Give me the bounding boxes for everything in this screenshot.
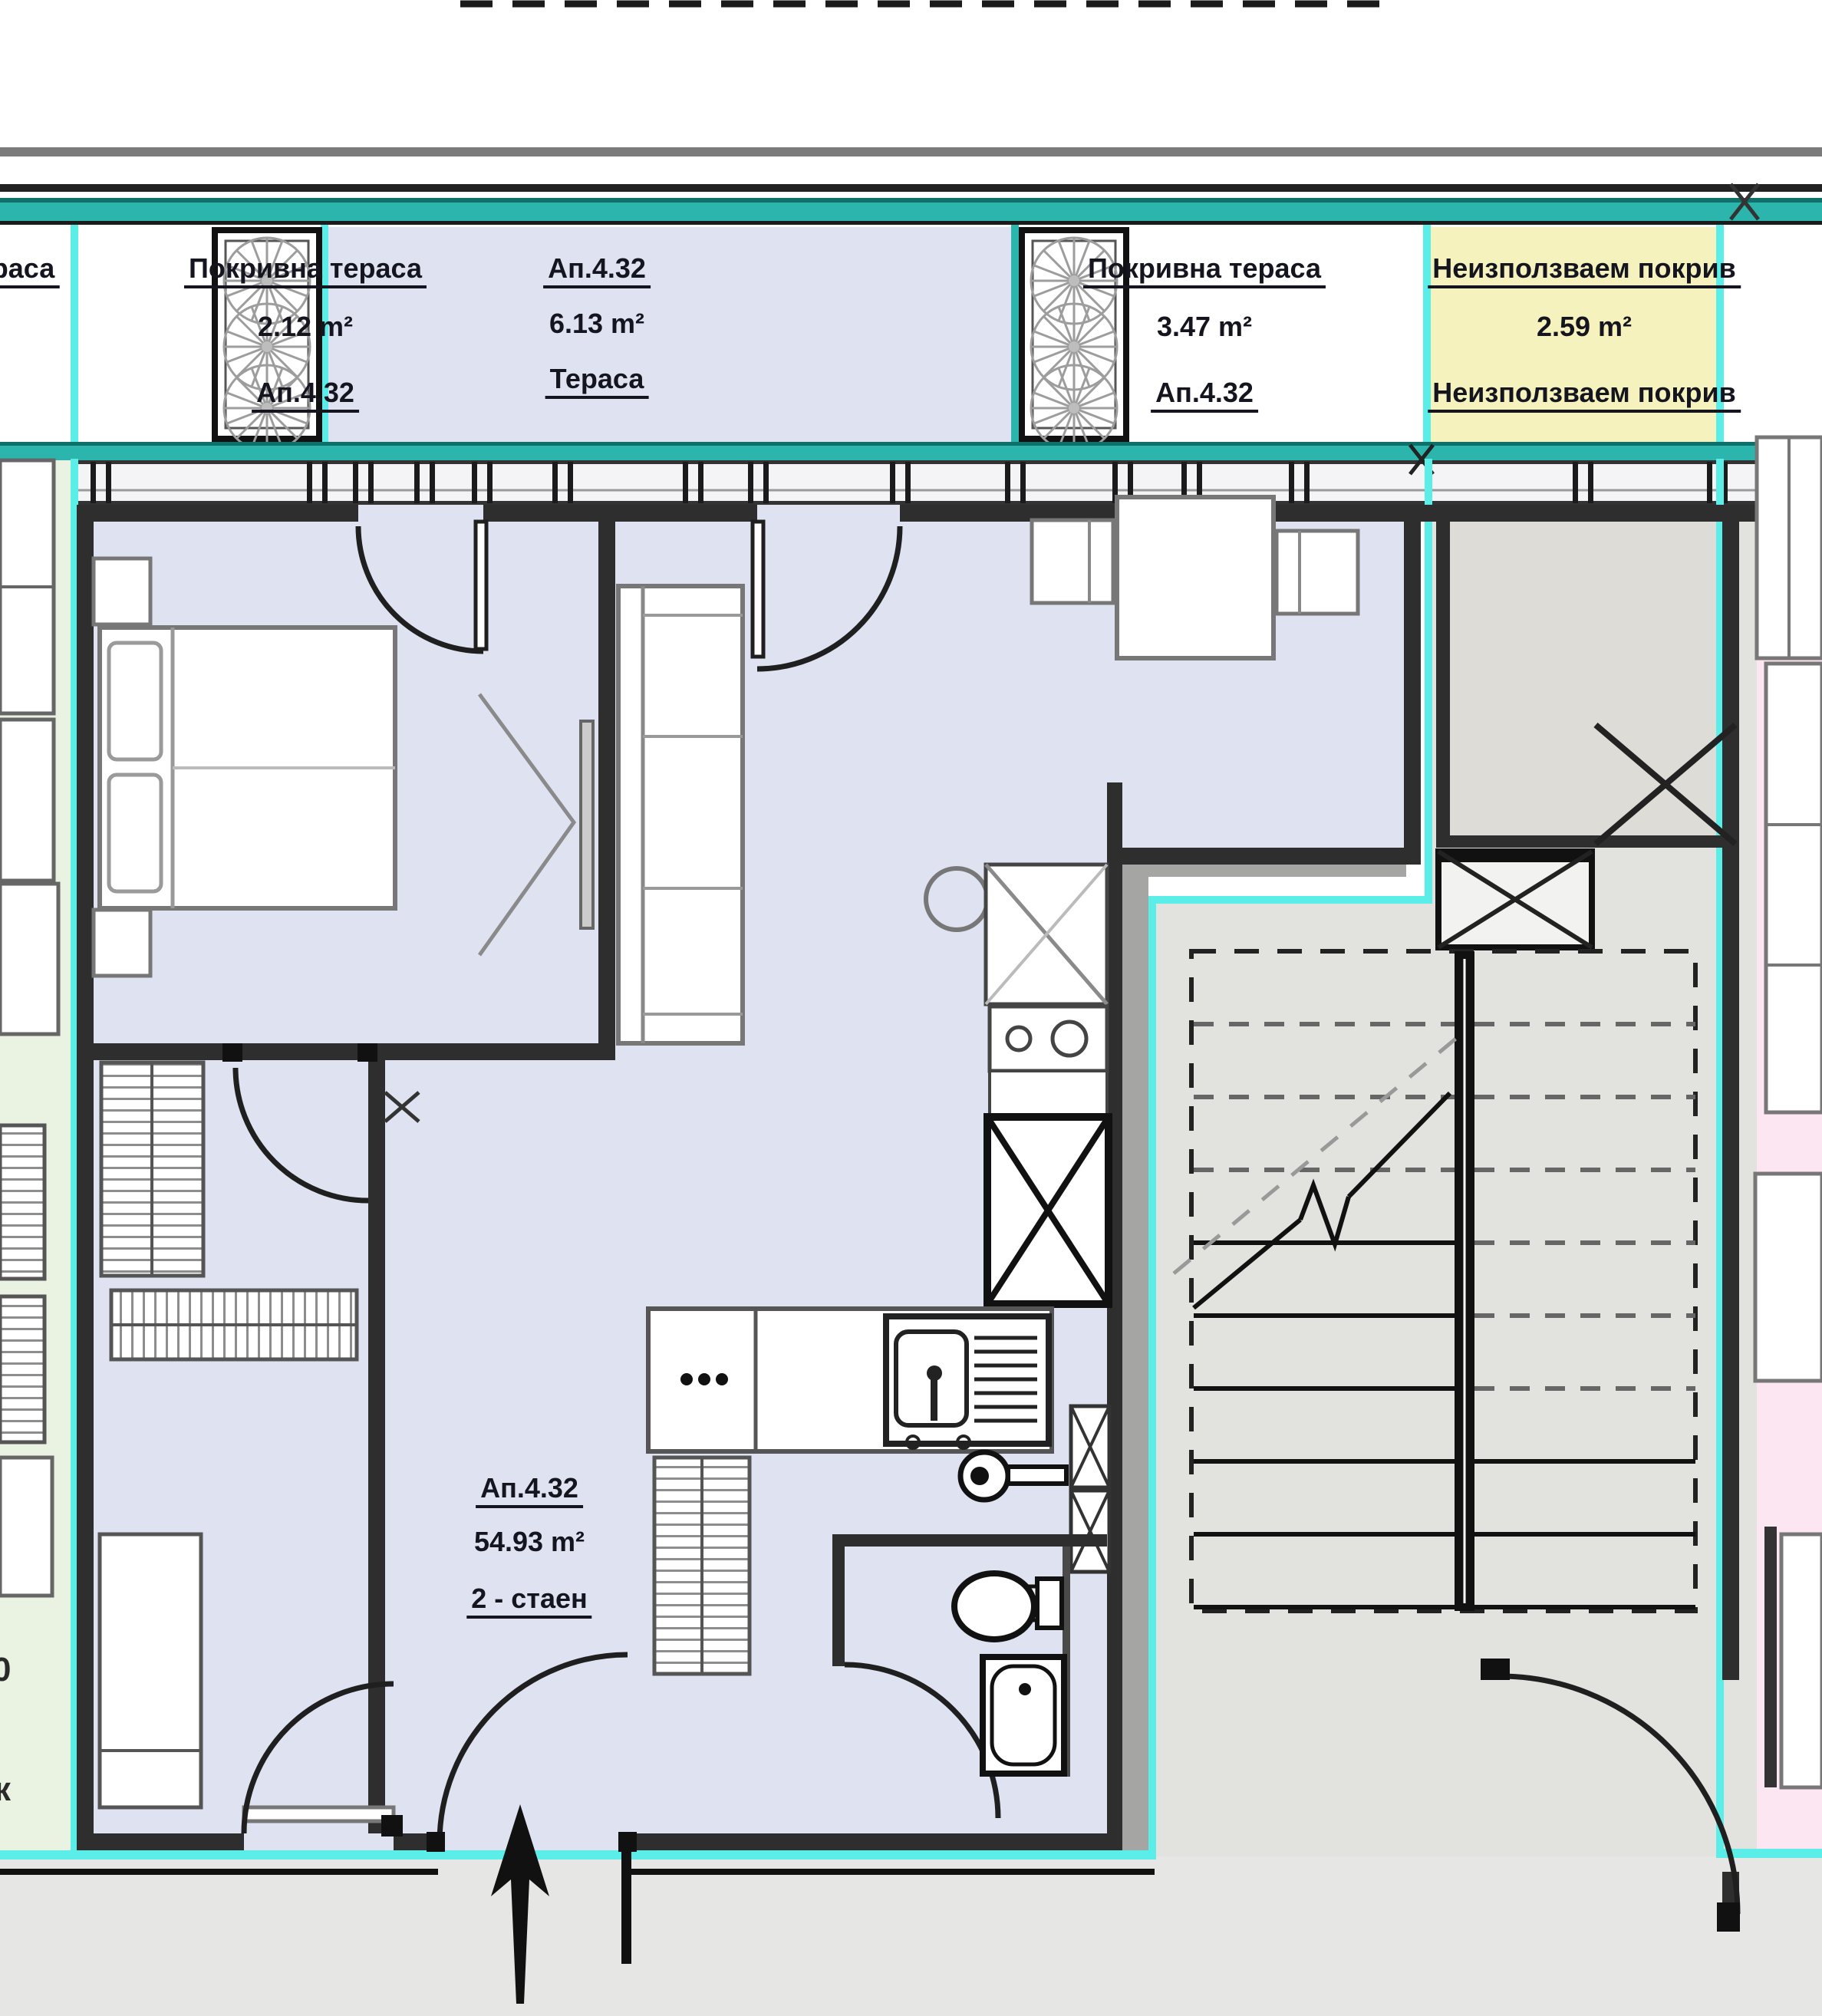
counter (990, 1071, 1107, 1115)
neighbor-right-furniture (1755, 437, 1822, 1787)
label-roof-unused-title: Неизползваем покрив (1428, 255, 1741, 288)
sofa (618, 586, 743, 1043)
vent-x-box (1071, 1406, 1109, 1572)
label-roof-unused-subtitle: Неизползваем покрив (1428, 379, 1741, 413)
floor-plan-drawing (0, 0, 1822, 2016)
label-terrace-main-area: 6.13 m² (545, 310, 649, 341)
shaft-x-box (1438, 848, 1592, 947)
label-terrace1-area: 2.12 m² (253, 313, 357, 344)
label-terrace2-title: Покривна тераса (1083, 255, 1326, 288)
label-terrace-main-title: Тераса (545, 365, 649, 399)
stove (990, 1006, 1107, 1071)
label-terrace-main-unit: Ап.4.32 (543, 255, 651, 288)
label-left-partial-terrace: раса (0, 255, 59, 288)
chair (1277, 531, 1358, 614)
label-terrace2-unit: Ап.4.32 (1151, 379, 1258, 413)
floor-plan-page: раса Покривна тераса 2.12 m² Ап.4.32 Ап.… (0, 0, 1822, 2016)
cyan-divider (71, 225, 78, 447)
label-terrace1-unit: Ап.4.32 (252, 379, 359, 413)
fridge-x-box (987, 1117, 1109, 1304)
label-roof-unused-area: 2.59 m² (1532, 313, 1636, 344)
building-edge-line (0, 184, 1822, 192)
drainer-lines (974, 1338, 1037, 1421)
label-apartment-unit: Ап.4.32 (476, 1474, 583, 1508)
wardrobe-hatched (111, 1290, 357, 1359)
chair (1032, 520, 1113, 603)
wardrobe-hatched (101, 1062, 203, 1276)
label-neighbor-bottom: к (0, 1771, 11, 1809)
bed (100, 628, 395, 908)
kitchen-sink-counter (648, 1309, 1052, 1451)
toilet (954, 1573, 1062, 1639)
terrace-main-area (328, 227, 1011, 445)
unit-outline-teal-bottom (0, 442, 1822, 460)
elevator-shaft-area (1436, 506, 1738, 848)
label-apartment-type: 2 - стаен (466, 1585, 591, 1619)
kitchen-corner-cabinet (986, 865, 1107, 1004)
cabinet (100, 1534, 201, 1807)
label-terrace1-title: Покривна тераса (184, 255, 427, 288)
nightstand (94, 910, 150, 976)
teal-divider (1011, 225, 1019, 447)
bathtub (983, 1657, 1064, 1774)
landing-area (0, 1856, 1822, 2016)
nightstand (94, 558, 150, 624)
roof-edge-line (0, 147, 1822, 156)
label-terrace2-area: 3.47 m² (1152, 313, 1257, 344)
unit-outline-teal-top (0, 203, 1822, 221)
hall-closet (654, 1458, 750, 1674)
label-apartment-area: 54.93 m² (470, 1528, 589, 1559)
label-neighbor-mid: 0 (0, 1651, 11, 1689)
